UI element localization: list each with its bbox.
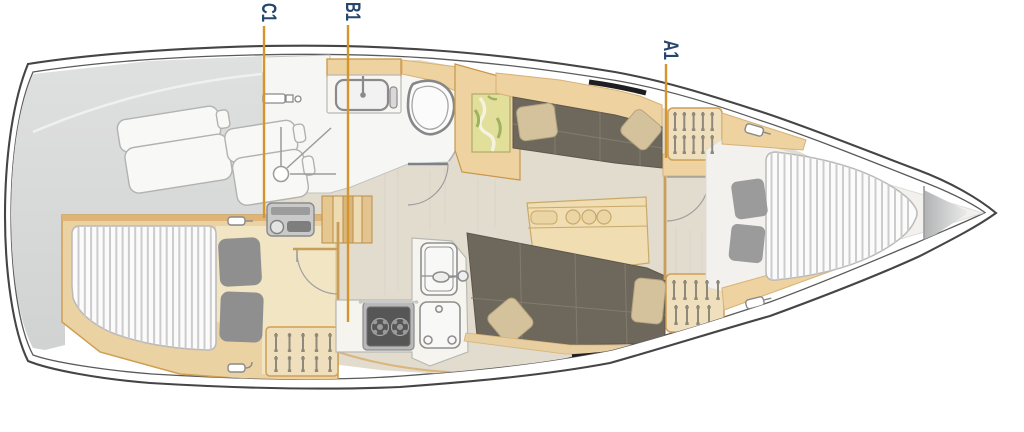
svg-text:C1: C1 bbox=[257, 3, 280, 22]
svg-text:A1: A1 bbox=[659, 40, 682, 60]
svg-text:B1: B1 bbox=[341, 2, 364, 21]
